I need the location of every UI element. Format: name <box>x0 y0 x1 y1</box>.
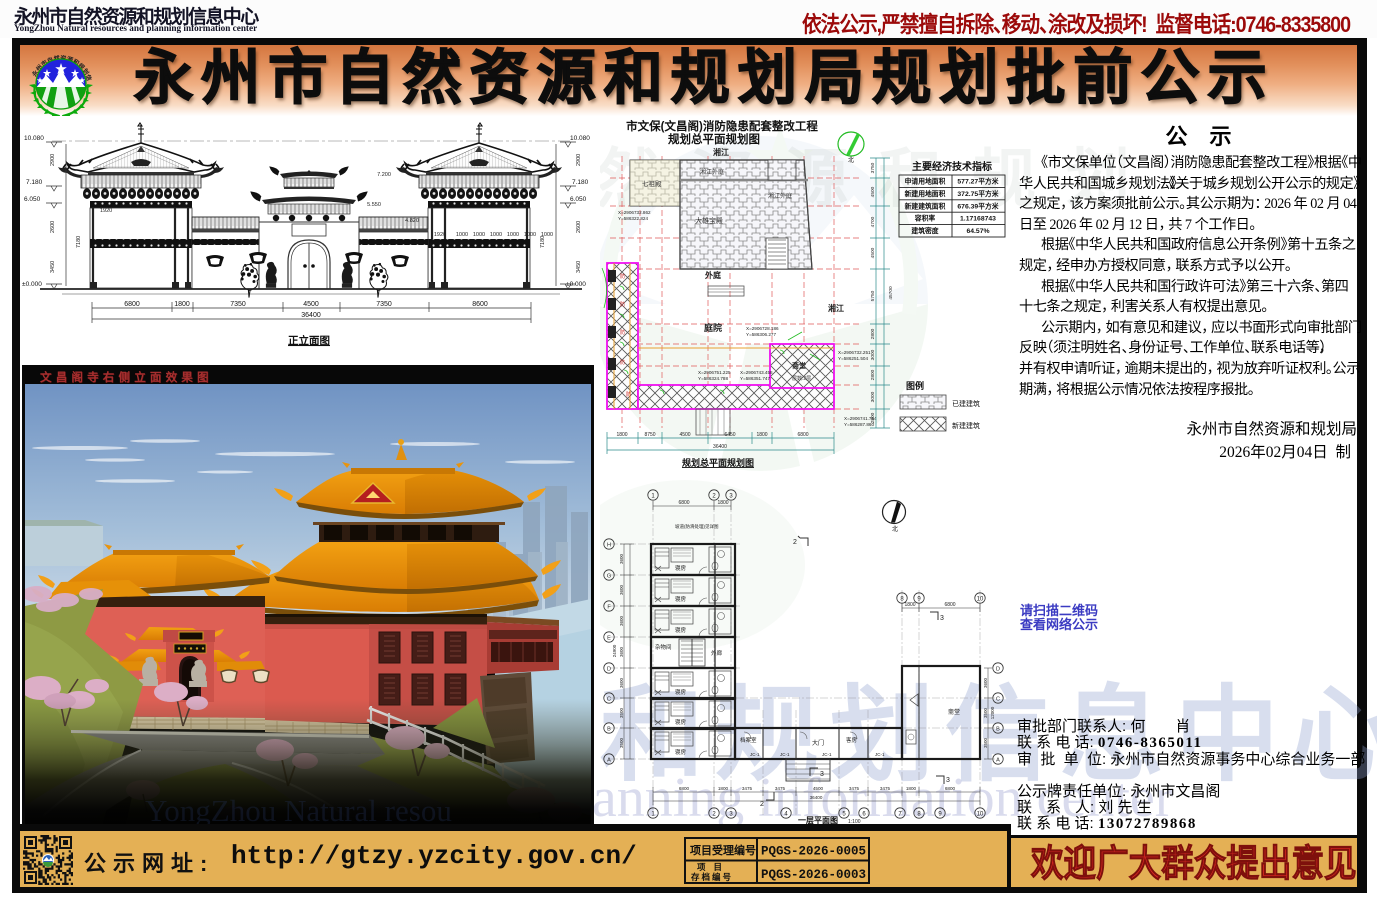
svg-text:8600: 8600 <box>472 301 488 308</box>
svg-text:2: 2 <box>793 539 797 546</box>
svg-text:3475: 3475 <box>775 786 786 791</box>
svg-text:市文保(文昌阁)消防隐患配套整改工程: 市文保(文昌阁)消防隐患配套整改工程 <box>626 119 818 133</box>
svg-text:5: 5 <box>842 812 846 818</box>
svg-text:防: 防 <box>620 273 625 280</box>
svg-text:6.050: 6.050 <box>570 196 587 203</box>
svg-text:湘江: 湘江 <box>828 303 844 313</box>
svg-text:C: C <box>996 697 1000 703</box>
svg-text:外廊: 外廊 <box>711 649 723 657</box>
svg-text:4500: 4500 <box>303 301 319 308</box>
svg-text:8750: 8750 <box>644 432 655 438</box>
svg-text:G: G <box>607 574 611 580</box>
svg-text:项目受理编号: 项目受理编号 <box>690 843 756 857</box>
svg-text:2600: 2600 <box>576 221 582 233</box>
svg-text:坡道(防滑处理)见详图: 坡道(防滑处理)见详图 <box>675 523 719 530</box>
svg-text:3500: 3500 <box>619 737 624 748</box>
svg-text:64.57%: 64.57% <box>966 228 989 235</box>
svg-text:3: 3 <box>946 777 950 784</box>
svg-text:北: 北 <box>848 156 854 164</box>
svg-text:北: 北 <box>892 525 898 533</box>
svg-text:大门: 大门 <box>812 739 824 747</box>
svg-text:B: B <box>996 727 1000 733</box>
svg-text:X=2906751.225: X=2906751.225 <box>698 370 731 375</box>
svg-text:3600: 3600 <box>619 615 624 626</box>
svg-text:3475: 3475 <box>880 786 891 791</box>
svg-text:3500: 3500 <box>983 707 988 718</box>
svg-text:10.080: 10.080 <box>24 135 44 142</box>
svg-text:2800: 2800 <box>870 369 876 380</box>
svg-text:4500: 4500 <box>870 247 876 258</box>
svg-text:1000: 1000 <box>490 232 502 238</box>
svg-text:7350: 7350 <box>230 301 246 308</box>
svg-text:2600: 2600 <box>50 221 56 233</box>
svg-text:防: 防 <box>620 301 625 308</box>
svg-text:3475: 3475 <box>742 786 753 791</box>
svg-text:4700: 4700 <box>870 216 876 227</box>
svg-text:6800: 6800 <box>124 301 140 308</box>
svg-text:D: D <box>607 667 611 673</box>
svg-text:X=2906743.458: X=2906743.458 <box>740 370 773 375</box>
svg-text:3600: 3600 <box>619 646 624 657</box>
svg-text:9: 9 <box>917 597 921 603</box>
svg-text:24900: 24900 <box>612 644 617 657</box>
svg-text:2900: 2900 <box>50 154 56 166</box>
svg-text:1000: 1000 <box>507 232 519 238</box>
svg-text:1000: 1000 <box>524 232 536 238</box>
svg-text:湘江外庭: 湘江外庭 <box>768 192 792 200</box>
svg-text:7.200: 7.200 <box>377 172 391 178</box>
svg-text:3475: 3475 <box>849 786 860 791</box>
svg-text:6450: 6450 <box>724 432 735 438</box>
svg-text:10: 10 <box>977 812 984 818</box>
svg-text:4500: 4500 <box>813 786 824 791</box>
svg-text:45700: 45700 <box>888 286 894 300</box>
svg-text:7: 7 <box>898 812 902 818</box>
svg-text:防: 防 <box>620 329 625 336</box>
svg-text:8: 8 <box>917 812 921 818</box>
svg-text:36400: 36400 <box>810 795 823 800</box>
svg-text:Y=586322.824: Y=586322.824 <box>618 216 648 221</box>
svg-text:10.080: 10.080 <box>570 135 590 142</box>
svg-text:杂物间: 杂物间 <box>655 643 672 651</box>
svg-text:4.820: 4.820 <box>405 218 419 224</box>
svg-text:6800: 6800 <box>679 786 690 791</box>
svg-text:3450: 3450 <box>50 261 56 273</box>
svg-text:4: 4 <box>784 812 788 818</box>
svg-text:建筑密度: 建筑密度 <box>910 226 938 235</box>
svg-text:新建建筑: 新建建筑 <box>952 421 980 430</box>
svg-text:Y=586251.504: Y=586251.504 <box>838 356 868 361</box>
svg-text:±0.000: ±0.000 <box>22 281 42 288</box>
svg-text:3500: 3500 <box>619 707 624 718</box>
svg-text:676.39平方米: 676.39平方米 <box>957 201 998 210</box>
svg-text:1000: 1000 <box>473 232 485 238</box>
svg-text:斋堂: 斋堂 <box>948 708 960 716</box>
svg-text:正立面图: 正立面图 <box>288 334 330 347</box>
svg-text:已建建筑: 已建建筑 <box>952 399 980 408</box>
svg-text:图例: 图例 <box>906 380 924 391</box>
svg-text:主要经济技术指标: 主要经济技术指标 <box>912 160 992 173</box>
svg-text:3750: 3750 <box>870 162 876 173</box>
svg-text:7180: 7180 <box>76 236 82 248</box>
svg-text:3: 3 <box>820 771 824 778</box>
svg-text:1800: 1800 <box>756 432 767 438</box>
svg-text:2900: 2900 <box>576 154 582 166</box>
svg-text:6800: 6800 <box>678 500 689 506</box>
svg-text:申请用地面积: 申请用地面积 <box>905 177 946 186</box>
svg-text:12000: 12000 <box>990 706 995 719</box>
svg-text:1800: 1800 <box>718 786 729 791</box>
svg-text:3600: 3600 <box>619 584 624 595</box>
svg-text:Y=586351.747: Y=586351.747 <box>740 376 770 381</box>
svg-text:9: 9 <box>938 812 942 818</box>
svg-text:6.050: 6.050 <box>24 196 41 203</box>
svg-text:1000: 1000 <box>456 232 468 238</box>
svg-text:1000: 1000 <box>541 232 553 238</box>
svg-text:Y=586287.860: Y=586287.860 <box>844 422 874 427</box>
svg-text:2800: 2800 <box>870 412 876 423</box>
svg-text:3000: 3000 <box>870 391 876 402</box>
svg-text:JC-1: JC-1 <box>750 752 760 757</box>
svg-text:1920: 1920 <box>434 232 446 238</box>
svg-text:1: 1 <box>651 812 655 818</box>
svg-text:3000: 3000 <box>870 349 876 360</box>
svg-text:7350: 7350 <box>376 301 392 308</box>
svg-text:X=2906732.862: X=2906732.862 <box>618 210 651 215</box>
svg-text:5.550: 5.550 <box>367 202 381 208</box>
svg-text:B: B <box>607 727 611 733</box>
svg-text:E: E <box>607 636 611 642</box>
svg-text:JC-1: JC-1 <box>875 752 885 757</box>
svg-text:1.17168743: 1.17168743 <box>960 216 996 223</box>
svg-text:防: 防 <box>620 359 625 366</box>
svg-text:10: 10 <box>977 597 984 603</box>
svg-text:新建建筑面积: 新建建筑面积 <box>905 201 946 210</box>
svg-text:6800: 6800 <box>944 602 955 608</box>
svg-text:2: 2 <box>760 801 764 808</box>
svg-text:客房: 客房 <box>846 736 858 744</box>
svg-text:防: 防 <box>626 391 631 398</box>
svg-text:A: A <box>996 758 1000 764</box>
svg-text:PQGS-2026-0003: PQGS-2026-0003 <box>761 868 866 882</box>
svg-text:7.180: 7.180 <box>26 179 43 186</box>
svg-text:外庭: 外庭 <box>705 270 722 280</box>
svg-text:1920: 1920 <box>100 208 112 214</box>
svg-text:JC-1: JC-1 <box>780 752 790 757</box>
svg-text:H: H <box>607 543 611 549</box>
svg-text:新建用地面积: 新建用地面积 <box>905 189 946 198</box>
svg-text:X=2906728.186: X=2906728.186 <box>746 326 779 331</box>
svg-text:3: 3 <box>729 812 733 818</box>
svg-text:3450: 3450 <box>576 261 582 273</box>
svg-text:C: C <box>607 697 611 703</box>
svg-text:D: D <box>996 667 1000 673</box>
svg-text:X=2906732.251: X=2906732.251 <box>838 350 871 355</box>
svg-text:Y=586324.788: Y=586324.788 <box>698 376 728 381</box>
svg-text:1800: 1800 <box>906 786 917 791</box>
svg-text:36400: 36400 <box>713 444 727 450</box>
svg-text:层数:2层: 层数:2层 <box>792 375 811 382</box>
svg-text:存档编号: 存档编号 <box>690 872 733 882</box>
svg-text:3600: 3600 <box>619 553 624 564</box>
svg-text:大雄宝殿: 大雄宝殿 <box>695 216 723 225</box>
svg-text:2800: 2800 <box>870 328 876 339</box>
svg-text:庭院: 庭院 <box>704 322 722 333</box>
svg-text:3500: 3500 <box>983 737 988 748</box>
svg-text:项目: 项目 <box>697 862 730 872</box>
svg-text:36400: 36400 <box>301 312 321 319</box>
svg-text:JC-1: JC-1 <box>822 752 832 757</box>
svg-text:规划总平面规划图: 规划总平面规划图 <box>668 132 760 146</box>
svg-text:规划总平面规划图: 规划总平面规划图 <box>682 457 754 468</box>
svg-text:4500: 4500 <box>679 432 690 438</box>
svg-text:5750: 5750 <box>870 290 876 301</box>
svg-text:湘江: 湘江 <box>713 147 729 157</box>
svg-text:Y=586306.277: Y=586306.277 <box>746 332 776 337</box>
svg-text:档案室: 档案室 <box>740 736 757 744</box>
svg-text:4500: 4500 <box>870 186 876 197</box>
svg-text:372.75平方米: 372.75平方米 <box>957 189 998 198</box>
svg-text:577.27平方米: 577.27平方米 <box>957 177 998 186</box>
svg-text:斋堂: 斋堂 <box>791 361 806 370</box>
svg-text:3600: 3600 <box>983 677 988 688</box>
svg-text:A: A <box>607 758 611 764</box>
svg-text:7.180: 7.180 <box>572 179 589 186</box>
svg-text:七祖殿: 七祖殿 <box>642 179 662 188</box>
svg-text:6800: 6800 <box>945 786 956 791</box>
svg-text:6800: 6800 <box>797 432 808 438</box>
svg-text:容积率: 容积率 <box>915 214 936 223</box>
svg-text:3600: 3600 <box>619 677 624 688</box>
svg-text:6: 6 <box>862 812 866 818</box>
svg-text:3: 3 <box>940 615 944 622</box>
svg-text:PQGS-2026-0005: PQGS-2026-0005 <box>761 845 866 859</box>
svg-text:湘江外庭: 湘江外庭 <box>700 168 724 176</box>
svg-text:1800: 1800 <box>904 602 915 608</box>
svg-text:YongZhou Natural resou: YongZhou Natural resou <box>145 793 452 828</box>
svg-text:2: 2 <box>712 812 716 818</box>
svg-text:1800: 1800 <box>717 500 728 506</box>
svg-text:1800: 1800 <box>174 301 190 308</box>
svg-text:1800: 1800 <box>616 432 627 438</box>
